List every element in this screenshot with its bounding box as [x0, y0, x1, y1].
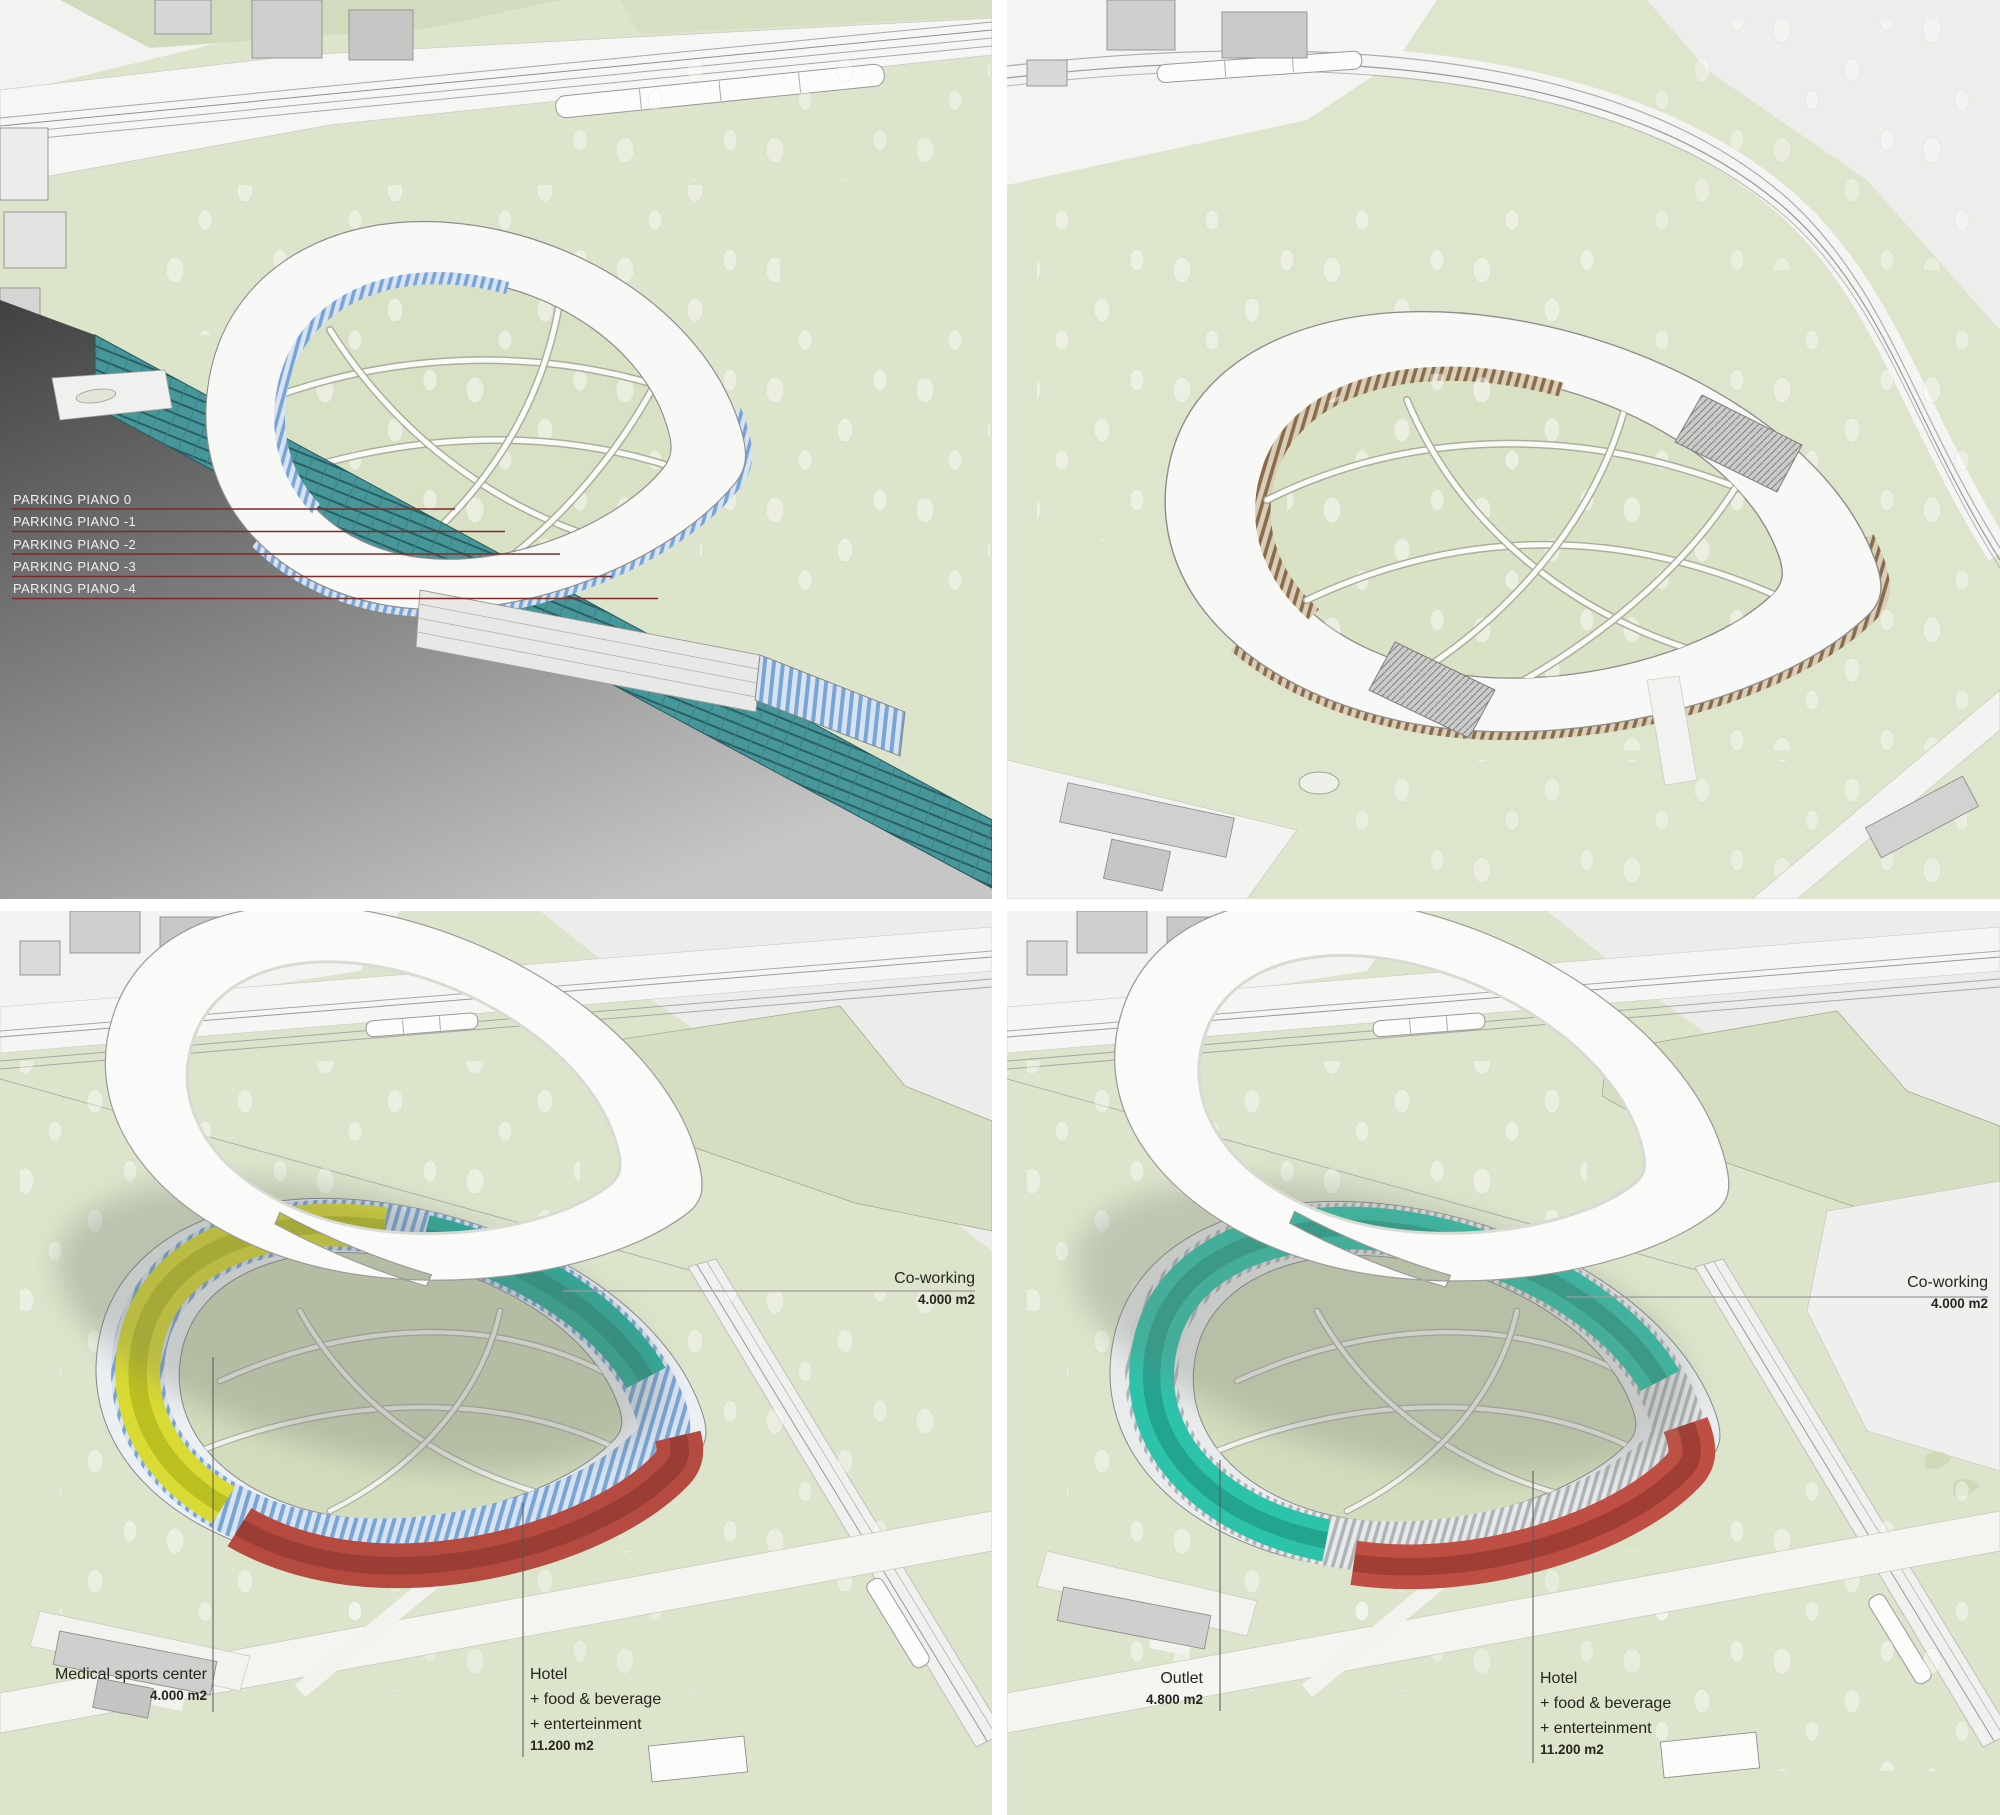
- hotel-title: Hotel: [530, 1662, 760, 1687]
- parking-level-label: PARKING PIANO 0: [13, 492, 131, 507]
- hotel-title: Hotel: [1540, 1666, 1770, 1691]
- architectural-diagram-sheet: { "colors": { "site_green": "#dce4cb", "…: [0, 0, 2000, 1815]
- label-hotel-option1: Hotel + food & beverage + enterteinment …: [530, 1662, 760, 1755]
- panel-parking-section: PARKING PIANO 0 PARKING PIANO -1 PARKING…: [0, 0, 992, 899]
- coworking-area: 4.000 m2: [815, 1291, 975, 1309]
- parking-level-label: PARKING PIANO -2: [13, 537, 136, 552]
- parking-level-label: PARKING PIANO -3: [13, 559, 136, 574]
- parking-level-label: PARKING PIANO -1: [13, 514, 136, 529]
- medical-title: Medical sports center: [27, 1662, 207, 1687]
- hotel-line2: + food & beverage: [1540, 1691, 1770, 1716]
- coworking-title: Co-working: [1828, 1270, 1988, 1295]
- hotel-area: 11.200 m2: [1540, 1741, 1770, 1759]
- medical-area: 4.000 m2: [27, 1687, 207, 1705]
- site-overview-illustration: [1007, 0, 2000, 899]
- panel-site-overview: [1007, 0, 2000, 899]
- coworking-area: 4.000 m2: [1828, 1295, 1988, 1313]
- hotel-line2: + food & beverage: [530, 1687, 760, 1712]
- label-coworking-option2: Co-working 4.000 m2: [1828, 1270, 1988, 1313]
- label-outlet: Outlet 4.800 m2: [1063, 1666, 1203, 1709]
- outlet-title: Outlet: [1063, 1666, 1203, 1691]
- label-hotel-option2: Hotel + food & beverage + enterteinment …: [1540, 1666, 1770, 1759]
- label-medical-sports-center: Medical sports center 4.000 m2: [27, 1662, 207, 1705]
- outlet-area: 4.800 m2: [1063, 1691, 1203, 1709]
- coworking-title: Co-working: [815, 1266, 975, 1291]
- hotel-area: 11.200 m2: [530, 1737, 760, 1755]
- hotel-line3: + enterteinment: [530, 1712, 760, 1737]
- hotel-line3: + enterteinment: [1540, 1716, 1770, 1741]
- parking-level-label: PARKING PIANO -4: [13, 581, 136, 596]
- label-coworking-option1: Co-working 4.000 m2: [815, 1266, 975, 1309]
- pond: [1299, 772, 1339, 794]
- parking-section-illustration: [0, 0, 992, 899]
